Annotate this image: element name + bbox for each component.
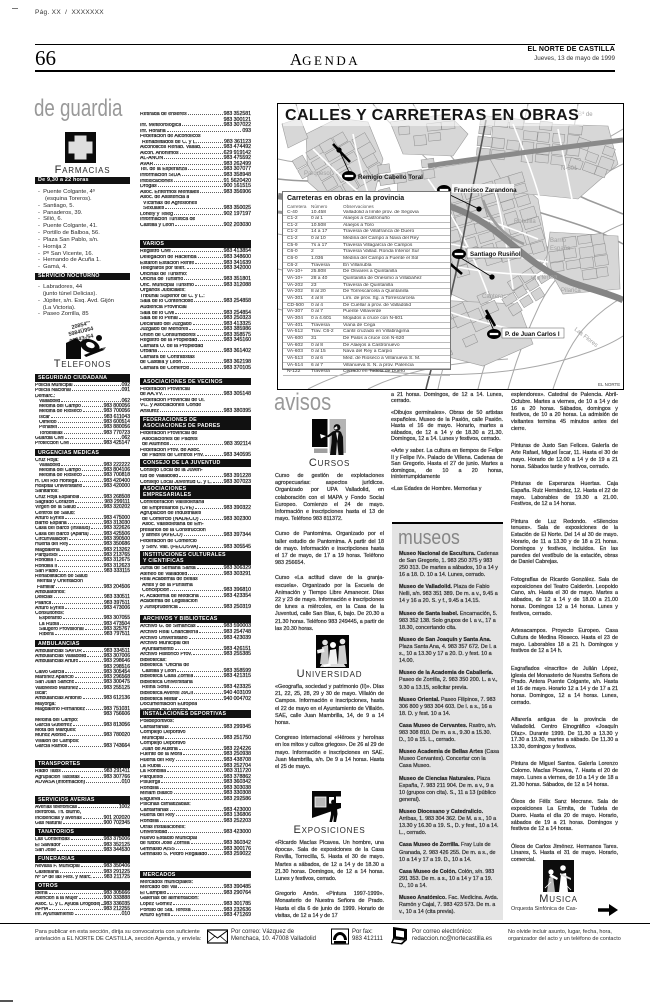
svg-text:España: España <box>550 246 571 252</box>
svg-text:Santiago Rusiñol: Santiago Rusiñol <box>470 251 521 258</box>
svg-text:P. de Juan Carlos I: P. de Juan Carlos I <box>505 331 560 338</box>
svg-text:Remigio Cabello Toral: Remigio Cabello Toral <box>358 174 423 181</box>
svg-text:Vía férrea: Vía férrea <box>531 274 558 282</box>
svg-text:Pilarica: Pilarica <box>561 288 581 294</box>
svg-text:Canterac: Canterac <box>482 294 506 300</box>
svg-text:Parquesol: Parquesol <box>304 171 331 177</box>
svg-text:N-601: N-601 <box>561 166 578 172</box>
svg-text:Francisco Zarandona: Francisco Zarandona <box>454 187 517 194</box>
svg-text:Rondilla: Rondilla <box>514 219 536 225</box>
svg-text:Barrio: Barrio <box>550 238 567 244</box>
svg-text:EL NORTE: EL NORTE <box>598 382 620 387</box>
